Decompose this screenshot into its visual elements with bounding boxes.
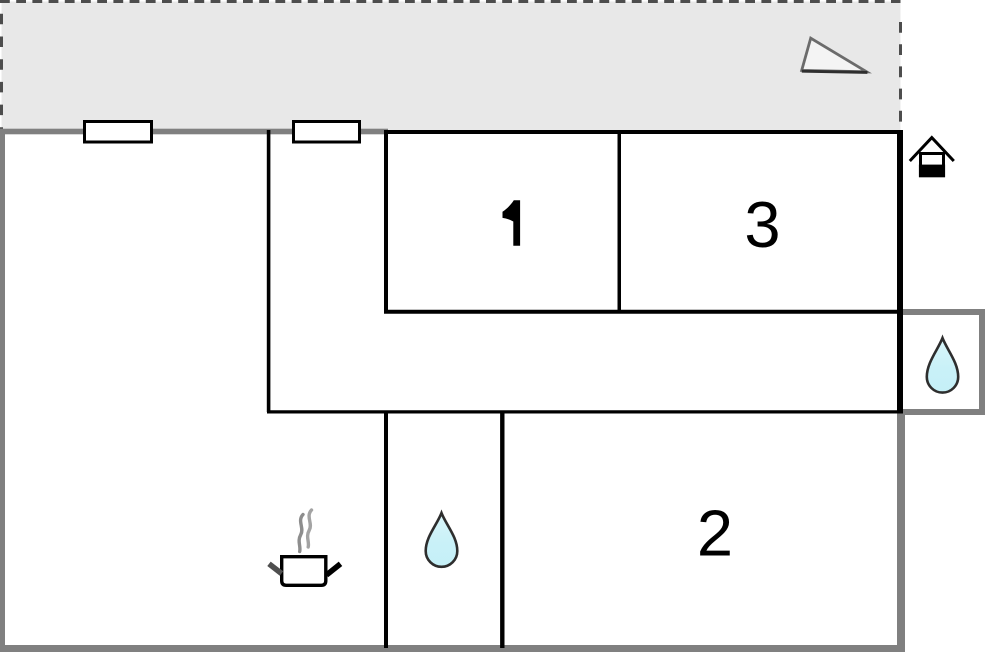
svg-text:3: 3 [744, 188, 780, 261]
svg-text:2: 2 [697, 496, 733, 569]
